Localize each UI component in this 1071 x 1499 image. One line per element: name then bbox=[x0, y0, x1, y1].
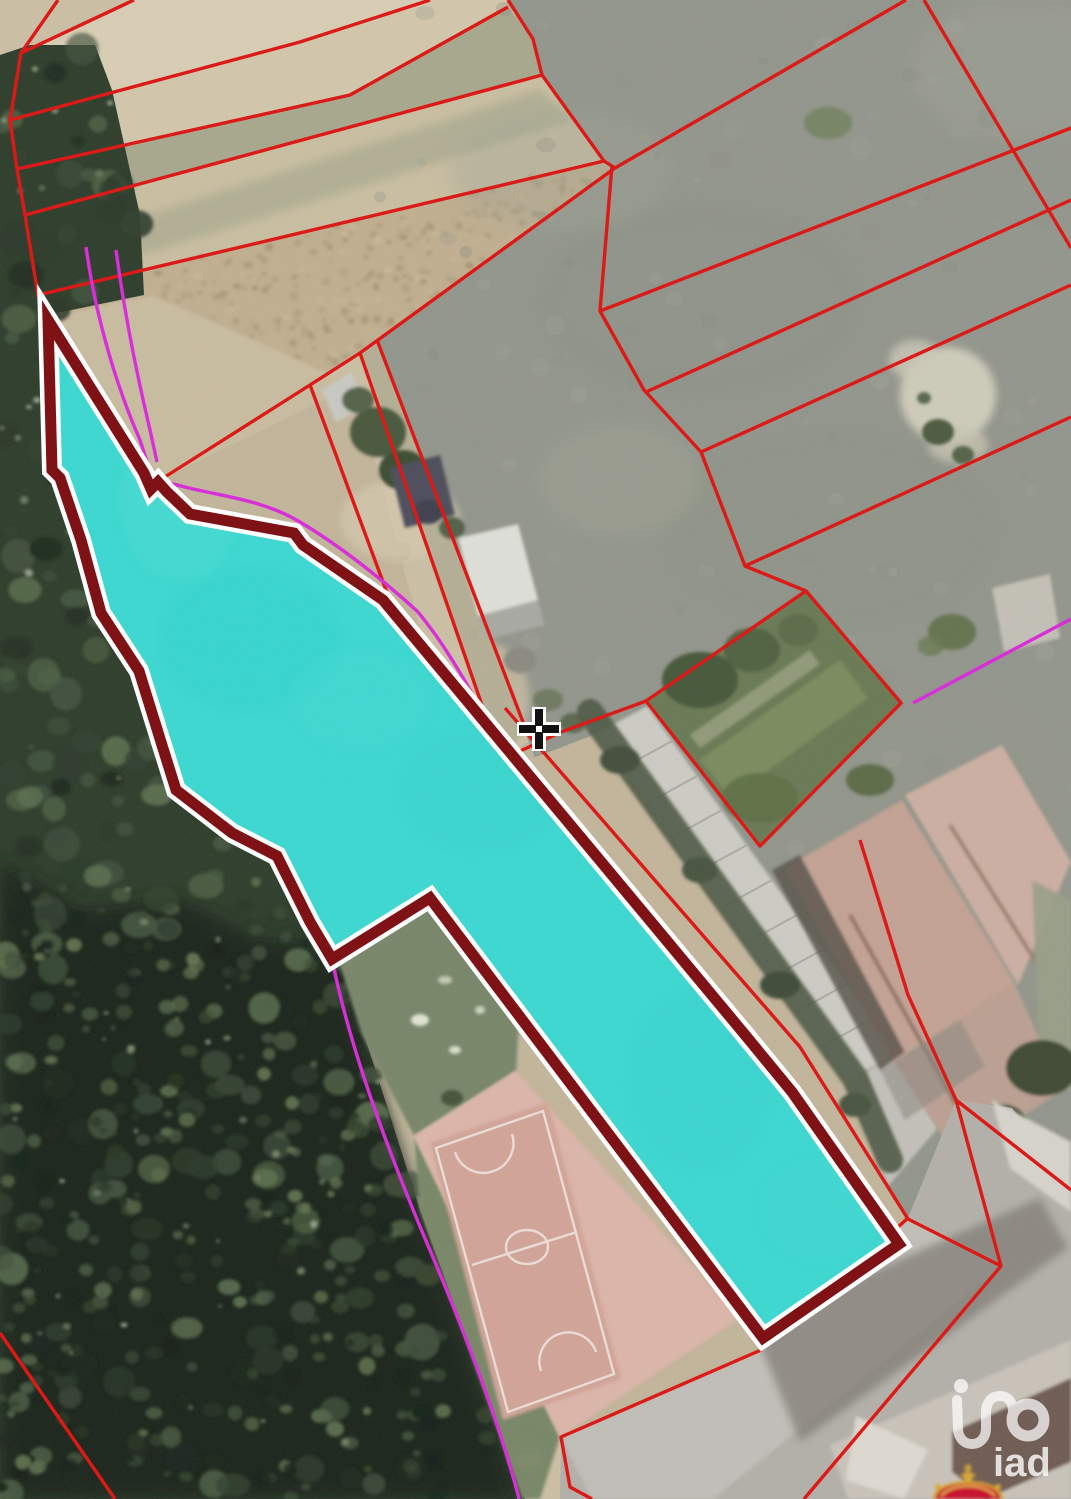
svg-text:iad: iad bbox=[993, 1441, 1051, 1485]
